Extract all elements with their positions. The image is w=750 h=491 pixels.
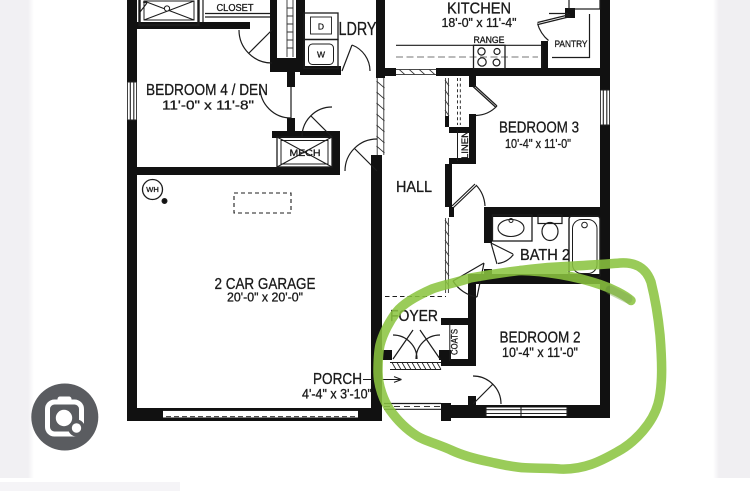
svg-text:HALL: HALL [396,179,432,196]
svg-text:10'-4" x 11'-0": 10'-4" x 11'-0" [505,136,571,151]
svg-text:PANTRY: PANTRY [555,39,589,50]
svg-text:BEDROOM 2: BEDROOM 2 [500,330,581,347]
svg-text:20'-0" x 20'-0": 20'-0" x 20'-0" [227,290,303,305]
svg-text:BEDROOM 3: BEDROOM 3 [499,120,579,137]
svg-text:RANGE: RANGE [474,35,505,46]
svg-text:MECH: MECH [290,148,321,159]
svg-text:D: D [318,22,324,32]
svg-text:WH: WH [146,185,159,194]
svg-text:CLOSET: CLOSET [217,3,254,14]
svg-text:COATS: COATS [450,329,460,355]
svg-text:LDRY: LDRY [339,18,377,39]
svg-text:PORCH: PORCH [313,371,362,388]
svg-text:LINEN: LINEN [460,131,471,159]
svg-text:BATH 2: BATH 2 [520,247,570,264]
svg-text:W: W [317,50,325,60]
svg-text:18'-0" x 11'-4": 18'-0" x 11'-4" [442,15,517,30]
svg-text:BEDROOM 4 / DEN: BEDROOM 4 / DEN [146,82,268,99]
svg-text:11'-0" x 11'-8": 11'-0" x 11'-8" [162,98,254,113]
svg-text:4'-4" x 3'-10": 4'-4" x 3'-10" [302,387,372,402]
svg-text:10'-4" x 11'-0": 10'-4" x 11'-0" [502,345,578,360]
